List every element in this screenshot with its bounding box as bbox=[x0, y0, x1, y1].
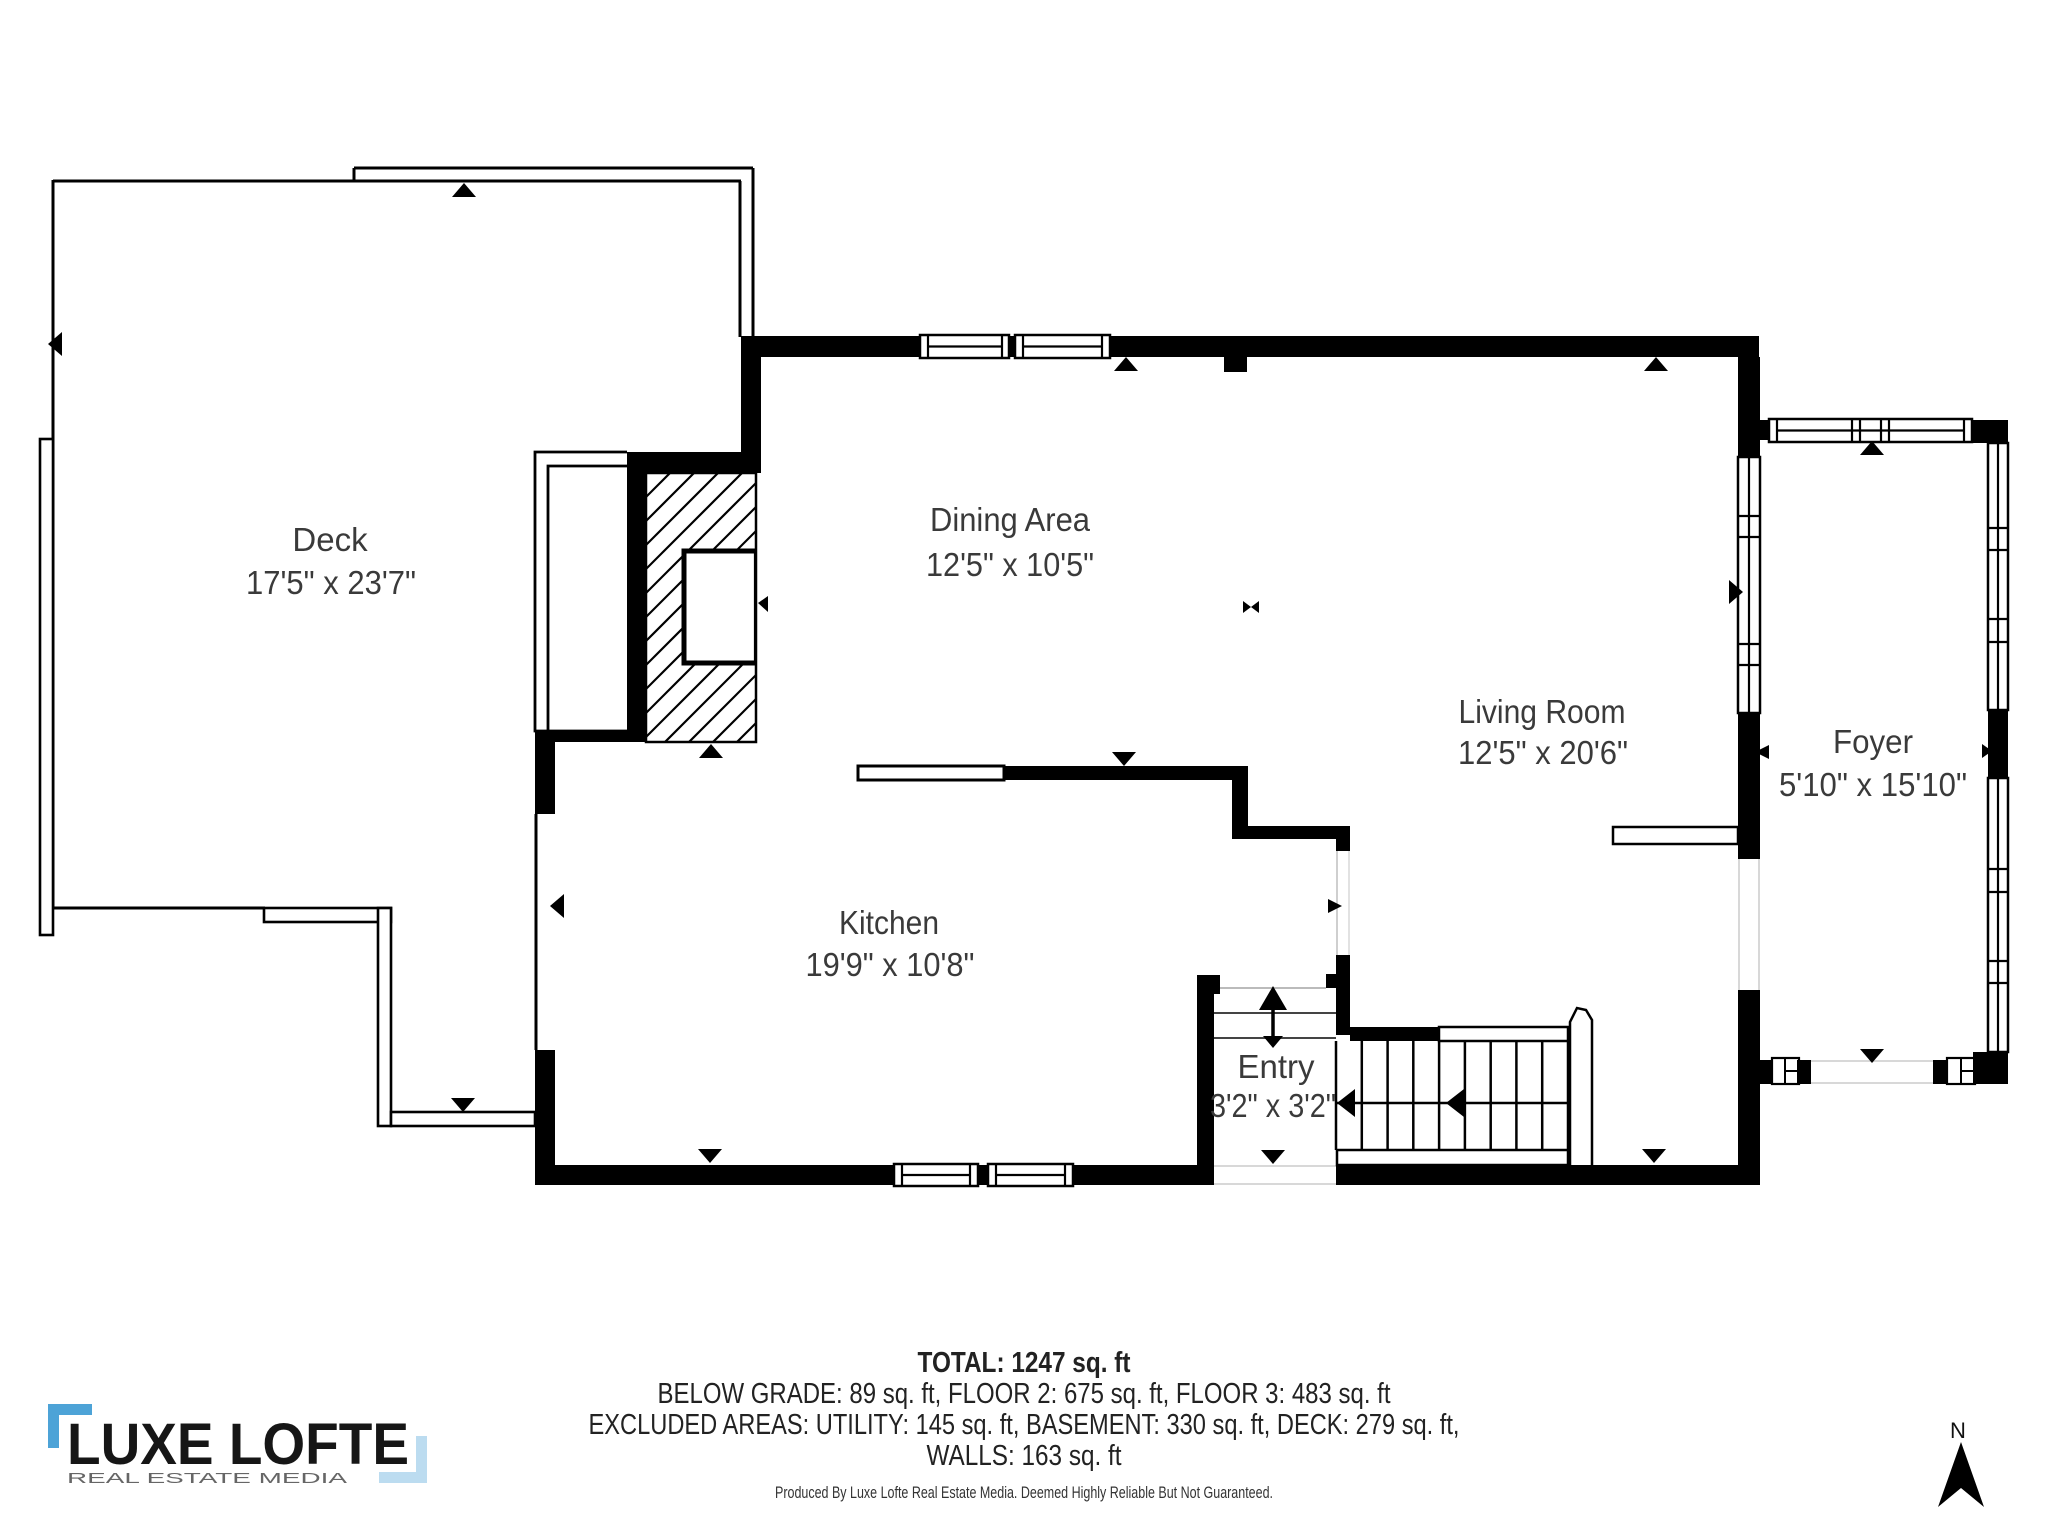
svg-text:Foyer: Foyer bbox=[1833, 723, 1913, 760]
svg-text:3'2" x 3'2": 3'2" x 3'2" bbox=[1210, 1087, 1336, 1124]
svg-text:REAL ESTATE MEDIA: REAL ESTATE MEDIA bbox=[67, 1470, 347, 1487]
svg-text:N: N bbox=[1950, 1418, 1966, 1443]
svg-text:Deck: Deck bbox=[292, 521, 368, 558]
svg-text:Kitchen: Kitchen bbox=[839, 904, 939, 941]
svg-text:Dining Area: Dining Area bbox=[930, 501, 1091, 538]
svg-text:12'5" x 10'5": 12'5" x 10'5" bbox=[926, 546, 1094, 583]
svg-text:EXCLUDED AREAS: UTILITY: 145 s: EXCLUDED AREAS: UTILITY: 145 sq. ft, BAS… bbox=[589, 1409, 1460, 1441]
svg-text:12'5" x 20'6": 12'5" x 20'6" bbox=[1458, 734, 1628, 771]
svg-text:17'5" x 23'7": 17'5" x 23'7" bbox=[246, 564, 416, 601]
svg-text:TOTAL: 1247 sq. ft: TOTAL: 1247 sq. ft bbox=[918, 1347, 1131, 1379]
svg-text:LUXE LOFTE: LUXE LOFTE bbox=[67, 1412, 409, 1477]
svg-text:Living Room: Living Room bbox=[1459, 693, 1626, 730]
svg-text:Entry: Entry bbox=[1237, 1048, 1315, 1085]
svg-text:BELOW GRADE: 89 sq. ft, FLOOR: BELOW GRADE: 89 sq. ft, FLOOR 2: 675 sq.… bbox=[658, 1378, 1391, 1410]
svg-text:Produced By Luxe Lofte Real Es: Produced By Luxe Lofte Real Estate Media… bbox=[775, 1483, 1273, 1502]
svg-text:19'9" x 10'8": 19'9" x 10'8" bbox=[806, 946, 975, 983]
svg-text:WALLS: 163 sq. ft: WALLS: 163 sq. ft bbox=[927, 1440, 1122, 1472]
svg-text:5'10" x 15'10": 5'10" x 15'10" bbox=[1779, 766, 1967, 803]
